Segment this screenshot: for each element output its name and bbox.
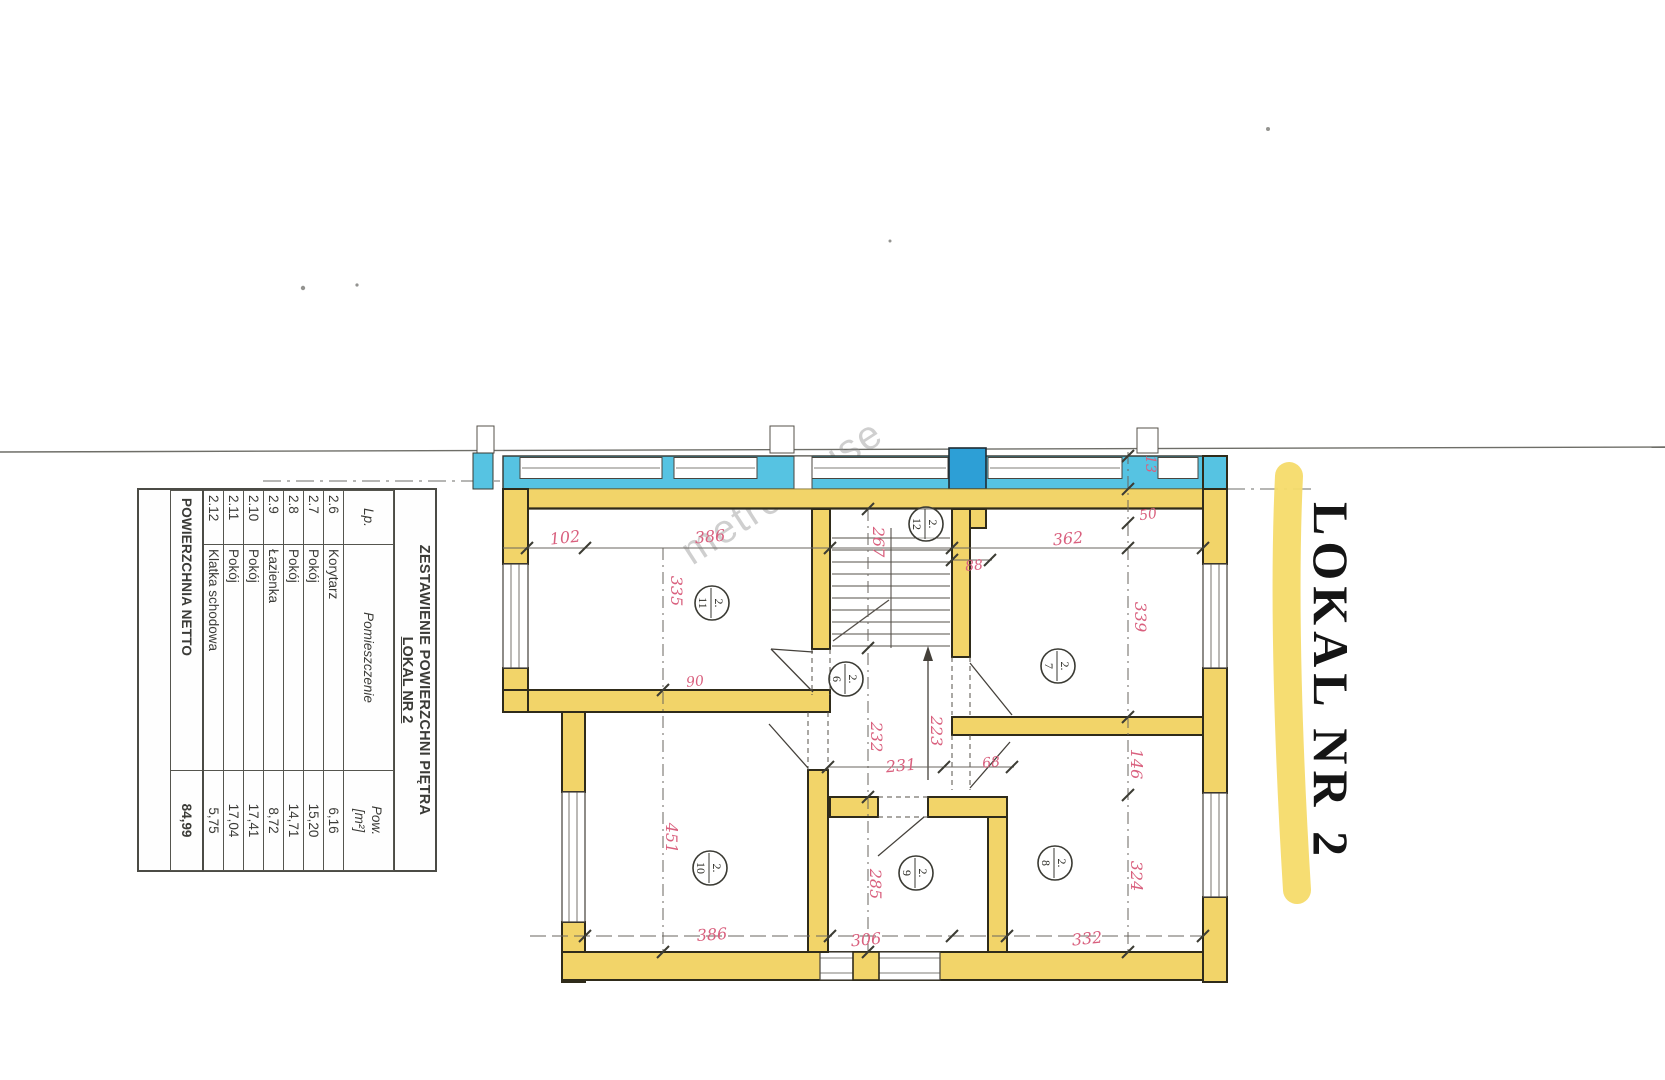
area-table-cell-lp: 2.9 (264, 491, 284, 545)
dimension-label: 306 (850, 929, 882, 951)
area-table-cell-area: 17,41 (244, 771, 264, 871)
side-label-text: LOKAL NR 2 (1303, 502, 1359, 862)
dimension-label: 285 (866, 868, 885, 900)
window-glazing (511, 564, 1219, 973)
dimension-label: 267 (869, 526, 888, 558)
area-table-row: 2.12Klatka schodowa5,75 (203, 491, 224, 871)
area-table-cell-lp: 2.11 (224, 491, 244, 545)
dimension-label: 232 (867, 721, 886, 753)
room-marker-text: 2. (1055, 859, 1069, 868)
area-table-row: 2.9Łazienka8,72 (264, 491, 284, 871)
dimension-label: 102 (549, 526, 581, 548)
room-marker-text: 11 (696, 597, 710, 609)
dimension-label: 332 (1071, 927, 1103, 949)
room-marker-text: 2. (846, 675, 860, 684)
area-table-cell-room: Pokój (304, 545, 324, 771)
area-table-cell-lp: 2.7 (304, 491, 324, 545)
col-header-area: Pow. [m²] (344, 771, 394, 871)
area-table-cell-lp: 2.12 (203, 491, 224, 545)
area-table-grid: Lp. Pomieszczenie Pow. [m²] 2.6Korytarz6… (171, 490, 395, 871)
area-table-cell-area: 6,16 (324, 771, 344, 871)
room-marker-text: 7 (1042, 663, 1056, 669)
area-table-cell-area: 8,72 (264, 771, 284, 871)
room-marker-text: 8 (1039, 860, 1053, 866)
windows (503, 564, 1227, 980)
left-cyan-stub (473, 453, 493, 489)
room-marker-text: 10 (694, 862, 708, 874)
chimney-block (949, 448, 986, 489)
area-table-cell-lp: 2.10 (244, 491, 264, 545)
area-table-header-row: Lp. Pomieszczenie Pow. [m²] (344, 491, 394, 871)
dimension-label: 386 (694, 526, 726, 548)
room-marker-text: 2. (916, 869, 930, 878)
area-table-cell-lp: 2.8 (284, 491, 304, 545)
col-header-area-line2: [m²] (353, 809, 368, 832)
room-marker-2.6: 2.6 (829, 662, 863, 696)
area-table-footer-row: POWIERZCHNIA NETTO 84,99 (171, 491, 203, 871)
dimension-label: 13 (1142, 455, 1158, 473)
doors (769, 649, 1012, 856)
area-table-cell-room: Pokój (284, 545, 304, 771)
dimension-label: 386 (696, 924, 728, 945)
area-table-row: 2.6Korytarz6,16 (324, 491, 344, 871)
dimension-label: 50 (1138, 506, 1158, 524)
room-marker-text: 9 (900, 870, 914, 876)
dimension-label: 88 (964, 557, 983, 575)
room-marker-text: 2. (926, 520, 940, 529)
area-table-row: 2.10Pokój17,41 (244, 491, 264, 871)
dimension-label: 223 (927, 715, 946, 747)
area-table-cell-area: 14,71 (284, 771, 304, 871)
area-table-row: 2.11Pokój17,04 (224, 491, 244, 871)
area-table-subtitle: LOKAL NR 2 (399, 492, 415, 868)
room-marker-2.12: 2.12 (909, 507, 943, 541)
area-table-cell-room: Łazienka (264, 545, 284, 771)
dimension-label: 362 (1052, 528, 1084, 550)
area-table-cell-room: Pokój (244, 545, 264, 771)
area-table-cell-area: 15,20 (304, 771, 324, 871)
dimension-label: 231 (884, 755, 917, 777)
col-header-area-line1: Pow. (370, 806, 385, 835)
room-marker-text: 2. (1058, 662, 1072, 671)
area-table-cell-area: 17,04 (224, 771, 244, 871)
area-table-cell-lp: 2.6 (324, 491, 344, 545)
col-header-lp: Lp. (344, 491, 394, 545)
area-table: ZESTAWIENIE POWIERZCHNI PIĘTRA LOKAL NR … (137, 488, 437, 872)
room-marker-text: 2. (712, 599, 726, 608)
room-marker-2.7: 2.7 (1041, 649, 1075, 683)
dimension-label: 451 (662, 822, 681, 854)
room-marker-2.11: 2.11 (695, 586, 729, 620)
room-marker-2.9: 2.9 (899, 856, 933, 890)
area-table-cell-room: Klatka schodowa (203, 545, 224, 771)
dimension-label: 146 (1127, 749, 1146, 780)
area-table-cell-room: Korytarz (324, 545, 344, 771)
area-table-cell-area: 5,75 (203, 771, 224, 871)
area-table-title: ZESTAWIENIE POWIERZCHNI PIĘTRA (416, 492, 432, 868)
net-area-value: 84,99 (171, 771, 203, 871)
area-table-row: 2.7Pokój15,20 (304, 491, 324, 871)
dimension-label: 324 (1127, 861, 1146, 892)
room-marker-2.10: 2.10 (693, 851, 727, 885)
side-label-highlight (1287, 476, 1297, 890)
room-marker-text: 2. (710, 864, 724, 873)
scanned-floorplan-page: metrohouse (0, 0, 1665, 1080)
room-marker-text: 12 (910, 518, 924, 530)
dimension-label: 68 (981, 754, 1001, 772)
col-header-room: Pomieszczenie (344, 545, 394, 771)
area-table-title-block: ZESTAWIENIE POWIERZCHNI PIĘTRA LOKAL NR … (394, 490, 435, 870)
interior-walls (528, 509, 1203, 952)
area-table-row: 2.8Pokój14,71 (284, 491, 304, 871)
side-label: LOKAL NR 2 (1287, 476, 1359, 890)
dimension-label: 335 (667, 576, 686, 607)
dimension-label: 90 (685, 673, 704, 691)
room-marker-text: 6 (830, 676, 844, 682)
stair-direction-arrow (923, 646, 933, 661)
net-area-label: POWIERZCHNIA NETTO (171, 491, 203, 771)
room-marker-2.8: 2.8 (1038, 846, 1072, 880)
scan-specks (301, 127, 1270, 290)
dimension-label: 339 (1131, 602, 1150, 633)
bottom-wall-stub (853, 952, 879, 980)
area-table-cell-room: Pokój (224, 545, 244, 771)
